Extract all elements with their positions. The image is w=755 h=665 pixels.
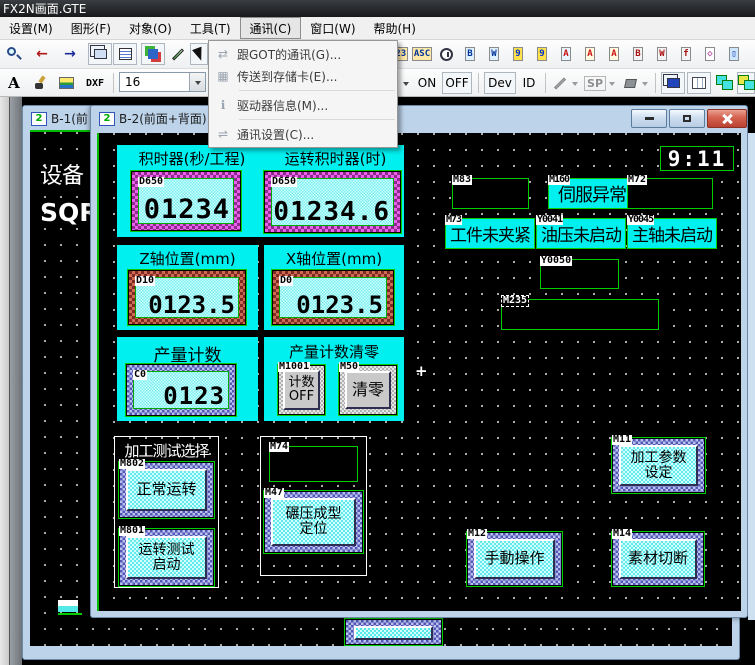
b1-fragment [58, 606, 78, 612]
magnifier-icon [6, 46, 22, 62]
button-label: 运转测试 [139, 543, 195, 558]
device-tag: M83 [452, 175, 472, 185]
menu-item-label: 驱动器信息(M)... [237, 97, 328, 114]
menu-item-comm-settings[interactable]: ⇌ 通讯设置(C)... [209, 123, 397, 145]
device-tag: Y0050 [540, 256, 572, 266]
menu-separator [239, 90, 395, 91]
menu-settings[interactable]: 设置(M) [0, 17, 62, 39]
device-tag: D10 [135, 276, 155, 286]
window-b2-titlebar[interactable]: 2 B-2(前面+背面):3 [99, 110, 218, 127]
line-color-icon[interactable] [550, 72, 570, 94]
numeric-display-count[interactable]: C0 0123 [126, 364, 236, 416]
combo-dropdown-icon[interactable] [189, 73, 205, 91]
lamp-m74[interactable]: M74 [269, 446, 358, 482]
x-axis-header: X轴位置(mm) [264, 248, 404, 269]
close-icon [722, 114, 732, 124]
font-size-combo[interactable]: 16 [119, 72, 206, 92]
forming-group[interactable]: M74 M47 碾压成型 定位 [260, 436, 367, 576]
button-label: 清零 [352, 382, 384, 399]
lamp-m235[interactable]: M235 [501, 299, 659, 330]
touch-key-clear[interactable]: M50 清零 [339, 365, 397, 415]
front-layer-icon[interactable] [713, 72, 737, 94]
timer-hours-header: 运转积时器(时) [267, 148, 404, 169]
b1-text-device[interactable]: 设备 [40, 158, 84, 190]
count-header: 产量计数 [117, 341, 258, 366]
restore-button[interactable] [669, 109, 705, 128]
lamp-spindle-not-started[interactable]: Y0045 主轴未启动 [627, 218, 717, 249]
touch-key-count-off[interactable]: M1001 计数 OFF [278, 365, 325, 415]
toolbar-separator [113, 73, 114, 93]
numeric-display-timer-seconds[interactable]: D650 01234 [131, 171, 241, 231]
z-axis-panel[interactable]: Z轴位置(mm) D10 0123.5 [117, 245, 258, 330]
button-label: 计数 [288, 376, 314, 390]
b1-fragment [58, 613, 82, 615]
menu-window[interactable]: 窗口(W) [301, 17, 364, 39]
device-tag: M160 [548, 175, 570, 185]
display-value: 01234.6 [273, 197, 390, 227]
sp-attr-dropdown-icon[interactable] [606, 72, 618, 94]
fill-color-dropdown-icon[interactable] [639, 72, 651, 94]
sp-attr-icon[interactable]: SP [584, 72, 606, 94]
touch-key-param-setting[interactable]: M11 加工参数 设定 [612, 438, 705, 493]
menu-item-label: 通讯设置(C)... [237, 126, 314, 143]
display-value: 01234 [144, 194, 230, 225]
memory-card-icon: ▦ [209, 69, 237, 83]
menu-item-got-comm[interactable]: ⇄ 跟GOT的通讯(G)... [209, 43, 397, 65]
app-titlebar: FX2N画面.GTE [0, 0, 755, 17]
drive-info-icon: ℹ [209, 98, 237, 112]
numeric-display-z-position[interactable]: D10 0123.5 [128, 270, 246, 325]
device-tag: M11 [612, 435, 632, 445]
menu-item-drive-info[interactable]: ℹ 驱动器信息(M)... [209, 94, 397, 116]
device-tag: M12 [467, 529, 487, 539]
touch-key-bit-icon[interactable]: B [626, 43, 650, 65]
got-comm-icon: ⇄ [209, 47, 237, 61]
device-tag: M801 [119, 526, 145, 536]
menu-tools[interactable]: 工具(T) [181, 17, 240, 39]
clock-time: 9:11 [668, 147, 727, 171]
lamp-area-icon[interactable]: 9 [530, 43, 554, 65]
device-tag: D650 [138, 177, 164, 187]
count-clear-panel[interactable]: 产量计数清零 M1001 计数 OFF M50 清零 [264, 337, 404, 421]
comm-settings-icon: ⇌ [209, 127, 237, 141]
window-b1-title: B-1(前 [51, 110, 88, 127]
id-button[interactable]: ID [518, 72, 540, 94]
lamp-hydraulic-not-started[interactable]: Y0041 油压未启动 [536, 218, 626, 249]
numeric-display-timer-hours[interactable]: D650 01234.6 [264, 171, 401, 233]
button-label: 素材切断 [628, 551, 688, 567]
window-b1-titlebar[interactable]: 2 B-1(前 [31, 110, 88, 127]
next-screen-icon[interactable]: → [58, 43, 82, 65]
display-value: 0123 [163, 382, 225, 410]
touch-key-word-icon[interactable]: W [650, 43, 674, 65]
button-label: 正常运转 [136, 482, 196, 498]
device-tag: M74 [269, 442, 289, 452]
button-label: OFF [289, 390, 314, 404]
display-value: 0123.5 [148, 291, 235, 319]
device-tag-selected: M235 [501, 295, 529, 307]
gtd-screen-icon: 2 [99, 112, 115, 126]
lamp-m72[interactable]: M72 [627, 178, 713, 209]
lamp-m83[interactable]: M83 [452, 178, 529, 209]
draw-figure-icon[interactable] [166, 43, 190, 65]
data-view-icon[interactable] [687, 72, 711, 94]
device-tag: M802 [119, 459, 145, 469]
clock-display-icon[interactable] [434, 43, 458, 65]
device-tag: M14 [612, 529, 632, 539]
count-clear-header: 产量计数清零 [264, 341, 404, 362]
edit-crosshair: + [415, 362, 428, 380]
touch-key-func-icon[interactable]: f [674, 43, 698, 65]
test-select-group[interactable]: 加工测试选择 M802 正常运转 M801 运转测试 启动 [114, 436, 219, 588]
screen-manager-icon[interactable] [88, 43, 112, 65]
screen-list-icon[interactable] [113, 43, 137, 65]
device-tag: M47 [264, 488, 284, 498]
fill-color-icon[interactable] [620, 72, 640, 94]
b1-partial-button[interactable] [345, 619, 442, 645]
figure-parts-icon[interactable]: ◇ [698, 43, 722, 65]
comment-display-b-icon[interactable]: B [458, 43, 482, 65]
button-label: 启动 [153, 558, 181, 573]
menu-separator [239, 119, 395, 120]
device-tag: M50 [339, 362, 359, 372]
touch-key-material-cut[interactable]: M14 素材切断 [612, 532, 704, 586]
device-tag: M72 [627, 175, 647, 185]
device-tag: Y0041 [536, 215, 563, 225]
docked-window-edge [0, 97, 9, 665]
device-tag: D650 [271, 177, 297, 187]
menu-object[interactable]: 对象(O) [120, 17, 181, 39]
gtd-screen-icon: 2 [31, 112, 47, 126]
lamp-servo-alarm[interactable]: M160 伺服异常 [548, 178, 636, 209]
alarm-list-system-icon[interactable]: A [602, 43, 626, 65]
menu-item-label: 跟GOT的通讯(G)... [237, 46, 341, 63]
button-label: 加工参数 [631, 451, 687, 466]
app-title: FX2N画面.GTE [3, 0, 86, 17]
line-color-dropdown-icon[interactable] [569, 72, 581, 94]
state-off-button[interactable]: OFF [442, 72, 472, 94]
alarm-history-icon[interactable]: A [554, 43, 578, 65]
close-button[interactable] [707, 109, 747, 128]
menu-communication[interactable]: 通讯(C) [240, 17, 302, 39]
paint-tool-icon[interactable] [28, 72, 52, 94]
menu-figure[interactable]: 图形(F) [62, 17, 120, 39]
b2-canvas[interactable]: 9:11 积时器(秒/工程) 运转积时器(时) D650 01234 D650 … [97, 133, 741, 611]
count-panel[interactable]: 产量计数 C0 0123 [117, 337, 258, 421]
device-tag: D0 [279, 276, 293, 286]
device-tag: M1001 [278, 362, 310, 372]
button-label: 定位 [300, 522, 328, 537]
device-button[interactable]: Dev [484, 72, 516, 94]
minimize-button[interactable] [631, 109, 667, 128]
back-layer-icon[interactable] [737, 72, 755, 94]
lamp-y0050[interactable]: Y0050 [540, 259, 619, 289]
restore-icon [683, 115, 691, 122]
menu-item-label: 传送到存储卡(E)... [237, 68, 337, 85]
state-on-button[interactable]: ON [414, 72, 440, 94]
menu-help[interactable]: 帮助(H) [365, 17, 425, 39]
screen-copy-icon[interactable] [661, 72, 685, 94]
clock-display-object[interactable]: 9:11 [660, 146, 734, 171]
layers-icon[interactable] [141, 43, 165, 65]
display-value: 0123.5 [296, 291, 383, 319]
touch-key-test-run-start[interactable]: M801 运转测试 启动 [119, 529, 214, 586]
previous-screen-icon[interactable]: ← [30, 43, 54, 65]
select-cursor-icon[interactable] [190, 43, 208, 65]
comment-display-w-icon[interactable]: W [482, 43, 506, 65]
z-axis-header: Z轴位置(mm) [117, 248, 258, 269]
communication-menu: ⇄ 跟GOT的通讯(G)... ▦ 传送到存储卡(E)... ℹ 驱动器信息(M… [208, 40, 398, 148]
menu-bar: 设置(M) 图形(F) 对象(O) 工具(T) 通讯(C) 窗口(W) 帮助(H… [0, 17, 755, 40]
device-tag: Y0045 [627, 215, 654, 225]
minimize-icon [645, 117, 654, 120]
timer-seconds-header: 积时器(秒/工程) [117, 148, 267, 169]
numeric-display-x-position[interactable]: D0 0123.5 [272, 270, 394, 325]
window-edge-right [748, 133, 755, 620]
dxf-import-icon[interactable]: DXF [80, 72, 110, 94]
button-label: 手動操作 [484, 551, 544, 567]
state-dropdown-icon[interactable] [398, 72, 414, 94]
lamp-workpiece-unclamped[interactable]: M73 工件未夹紧 [445, 218, 535, 249]
menu-item-memory-card[interactable]: ▦ 传送到存储卡(E)... [209, 65, 397, 87]
touch-key-manual-operation[interactable]: M12 手動操作 [467, 532, 562, 586]
library-parts-icon[interactable]: ▯ [722, 43, 746, 65]
alarm-list-user-icon[interactable]: A [578, 43, 602, 65]
timer-panel[interactable]: 积时器(秒/工程) 运转积时器(时) D650 01234 D650 01234… [117, 145, 404, 237]
text-tool-icon[interactable]: A [2, 72, 26, 94]
button-label: 碾压成型 [286, 507, 342, 522]
window-b2-title: B-2(前面+背面):3 [119, 110, 218, 127]
device-tag: M73 [445, 215, 462, 225]
touch-key-forming-position[interactable]: M47 碾压成型 定位 [264, 491, 363, 553]
x-axis-panel[interactable]: X轴位置(mm) D0 0123.5 [264, 245, 404, 330]
mdi-background [9, 97, 22, 665]
zoom-preview-icon[interactable] [2, 43, 26, 65]
ascii-display-icon[interactable]: ASC [410, 43, 434, 65]
button-label: 设定 [645, 466, 673, 481]
lamp-display-icon[interactable]: 9 [506, 43, 530, 65]
image-tool-icon[interactable] [54, 72, 78, 94]
touch-key-normal-run[interactable]: M802 正常运转 [119, 462, 214, 518]
device-tag: C0 [133, 370, 147, 380]
